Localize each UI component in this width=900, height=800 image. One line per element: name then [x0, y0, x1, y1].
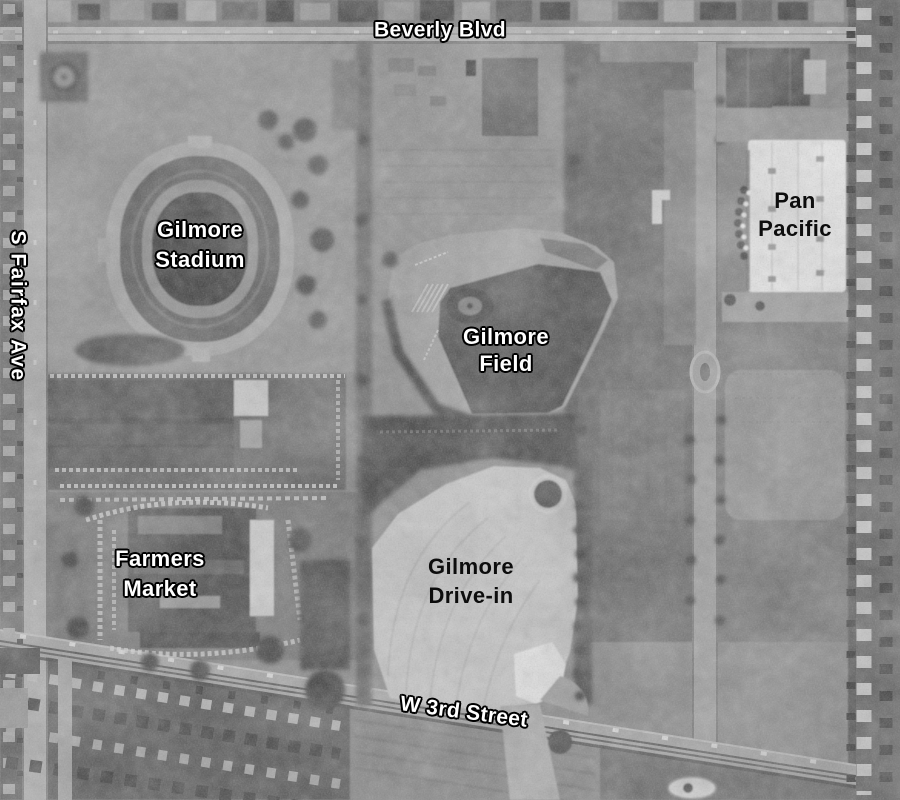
street-label-s-fairfax-ave: S Fairfax Ave [4, 230, 33, 381]
farmers-market-label-line2: Market [115, 574, 205, 604]
gilmore-stadium-label-line2: Stadium [155, 245, 245, 275]
gilmore-field-label-line1: Gilmore [463, 323, 549, 350]
pan-pacific-label-line1: Pan [758, 187, 832, 215]
place-label-gilmore-stadium: Gilmore Stadium [155, 215, 245, 275]
aerial-photo: Beverly Blvd S Fairfax Ave Gilmore Stadi… [0, 0, 900, 800]
place-label-farmers-market: Farmers Market [115, 544, 205, 604]
street-label-beverly-blvd: Beverly Blvd [374, 16, 506, 45]
gilmore-stadium-label-line1: Gilmore [155, 215, 245, 245]
gilmore-drive-in-label-line2: Drive-in [428, 581, 514, 610]
gilmore-drive-in-label-line1: Gilmore [428, 552, 514, 581]
pan-pacific-label-line2: Pacific [758, 215, 832, 243]
aerial-photo-canvas [0, 0, 900, 800]
farmers-market-label-line1: Farmers [115, 544, 205, 574]
place-label-gilmore-field: Gilmore Field [463, 323, 549, 377]
gilmore-field-label-line2: Field [463, 350, 549, 377]
place-label-gilmore-drive-in: Gilmore Drive-in [428, 552, 514, 610]
photo-grain-overlay [0, 0, 900, 800]
place-label-pan-pacific: Pan Pacific [758, 187, 832, 243]
